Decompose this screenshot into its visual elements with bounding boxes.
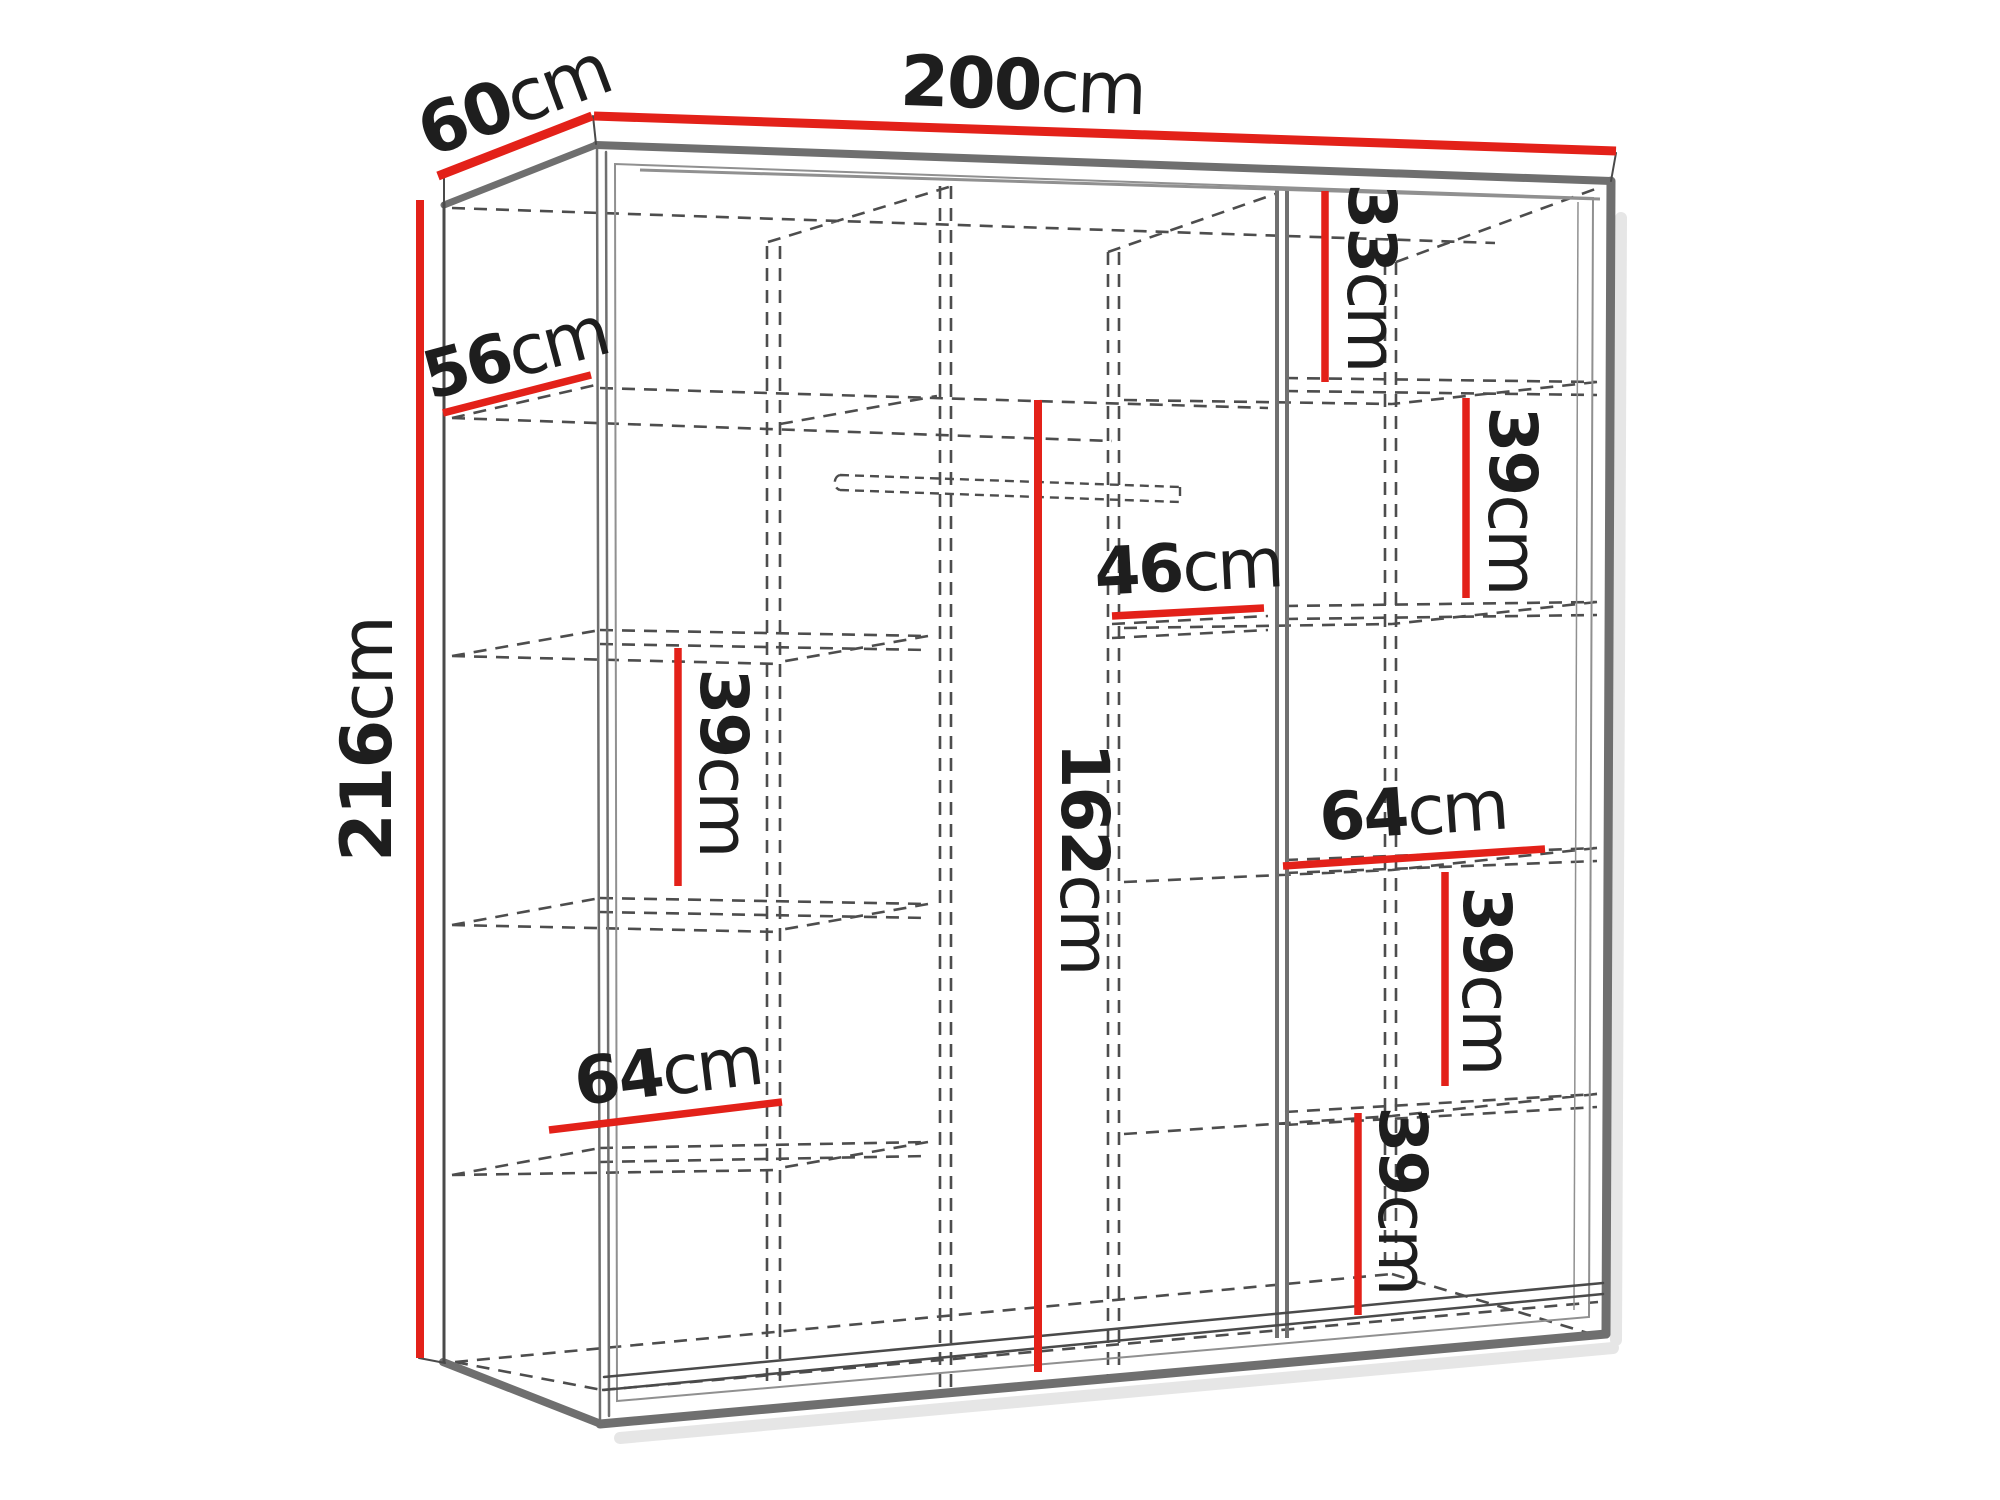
dim-label-right-shelf-width: 64cm: [1317, 766, 1509, 859]
top-shelf: [452, 384, 1268, 441]
dim-label-middle-back-width: 46cm: [1092, 523, 1283, 613]
middle-partition: [1277, 187, 1287, 1338]
dim-line-middle-back-width: [1112, 608, 1264, 616]
diagram-stage: 200cm 60cm 216cm 56cm 33cm 39cm 46cm 162…: [0, 0, 2000, 1500]
wardrobe-dimension-diagram: 200cm 60cm 216cm 56cm 33cm 39cm 46cm 162…: [0, 0, 2000, 1500]
dimension-labels: 200cm 60cm 216cm 56cm 33cm 39cm 46cm 162…: [325, 26, 1552, 1294]
left-shelf-3: [452, 898, 928, 932]
left-shelf-4: [452, 1142, 928, 1175]
dim-label-height: 216cm: [325, 618, 409, 862]
inner-right-line: [1574, 202, 1578, 1310]
right-front-edge: [1606, 181, 1611, 1334]
dim-label-right-upper-gap: 39cm: [1472, 406, 1552, 593]
dim-label-right-bottom-gap: 39cm: [1362, 1106, 1442, 1293]
bottom-front-edge: [600, 1334, 1606, 1424]
dim-label-hanging-height: 162cm: [1044, 743, 1124, 974]
back-top-edge: [452, 186, 1598, 262]
right-shelf-1: [1124, 378, 1597, 404]
dim-label-right-middle-gap: 39cm: [1446, 886, 1526, 1073]
hanging-rod: [835, 475, 1180, 502]
dim-label-right-top-gap: 33cm: [1331, 183, 1411, 370]
plinth-lines: [604, 1283, 1603, 1390]
dim-label-width: 200cm: [899, 38, 1146, 130]
left-shelf-2: [452, 630, 928, 664]
top-front-edge: [596, 145, 1611, 181]
left-bottom-slope-edge: [443, 1362, 601, 1424]
dim-label-left-shelf-gap: 39cm: [683, 668, 763, 855]
